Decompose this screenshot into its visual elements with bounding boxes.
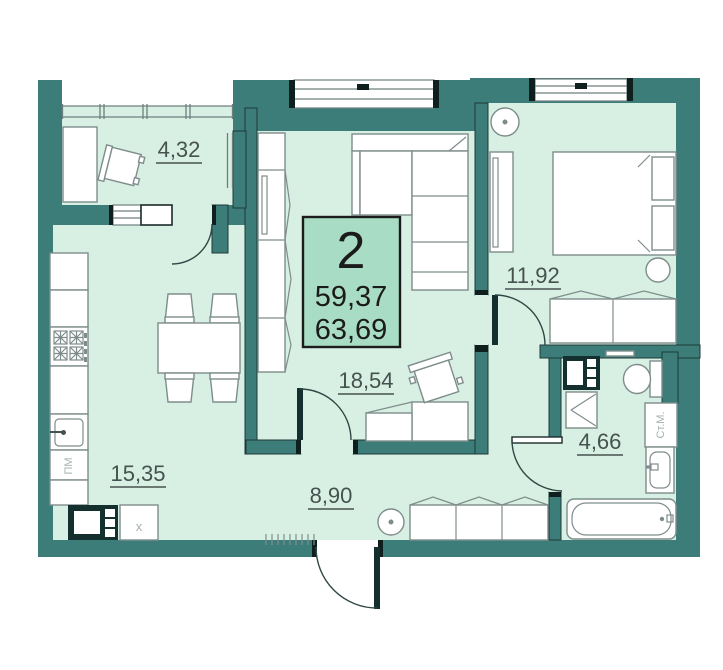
opening-bathroom-door [549,443,561,492]
unit-info-box: 2 59,37 63,69 [303,217,400,347]
total-area-label: 63,69 [315,314,388,346]
bathroom-vanity-unit [563,356,600,390]
bedside-table [646,258,670,282]
area-label-kitchen: 15,35 [110,461,165,486]
kitchen-appliance-unit [68,505,118,540]
hallway-light-icon [378,509,404,535]
opening-entrance-door [317,540,378,557]
entrance-door-leaf [374,547,380,609]
bathroom-door-leaf [512,437,562,443]
area-label-bedroom: 11,92 [506,263,559,288]
opening-living-door [301,440,353,454]
bedroom-dresser [490,152,513,252]
wall-outer-bottom-left [38,540,317,557]
washing-machine-label: Ст.М. [655,411,667,438]
double-bed [553,152,676,255]
floor-plan: ПМ x [0,0,723,670]
balcony-desk [63,127,97,202]
floor-plan-page: ПМ x [0,0,723,670]
dining-table [158,323,240,373]
bathtub [567,499,676,539]
washing-machine: Ст.М. [645,403,677,447]
kitchen-counter [50,366,88,414]
rooms-count-label: 2 [337,222,366,280]
bedroom-window [529,78,633,101]
wall-outer-right [676,78,700,557]
wall-living-bottom-left [246,440,301,454]
kitchen-sink-icon [50,414,88,450]
bathroom-cabinet [566,392,597,428]
kitchen-balcony-window [109,205,141,225]
kitchen-counter [50,290,88,327]
fridge-label: x [136,519,143,534]
bathroom-shelf [606,351,634,356]
toilet [624,361,663,397]
wall-living-bedroom-lower [475,345,488,454]
balcony-door-threshold-mark [357,84,369,90]
wall-kitchen-living [245,108,257,454]
washbasin [646,447,674,493]
stove-icon [50,327,88,366]
living-window [289,80,439,108]
wall-balcony-left [38,80,62,208]
wall-balcony-living [233,131,246,208]
area-label-balcony: 4,32 [158,137,201,162]
ceiling-light-icon [491,108,519,136]
wall-living-bedroom-upper [475,103,488,295]
wall-toilet-stub [662,352,678,403]
wall-outer-bottom-right [378,540,700,557]
wall-living-bottom-right [353,440,488,454]
bedroom-wardrobe [550,291,676,343]
kitchen-counter [50,480,88,505]
opening-bedroom-door [475,295,488,345]
wall-bathroom-left-lower [549,492,561,540]
living-area-label: 59,37 [315,281,388,313]
dishwasher: ПМ [50,450,88,480]
wall-bathroom-left-upper [549,358,561,443]
pillow [652,157,674,200]
opening-balcony-door [172,205,212,225]
fridge: x [120,505,158,540]
area-label-hallway: 8,90 [310,483,353,508]
living-door-leaf [297,388,303,440]
pillow [652,206,674,250]
dishwasher-label: ПМ [63,457,75,474]
area-label-living: 18,54 [338,368,393,393]
bedroom-door-leaf [492,295,498,345]
kitchen-counter [50,253,88,290]
area-label-bathroom: 4,66 [579,429,622,454]
